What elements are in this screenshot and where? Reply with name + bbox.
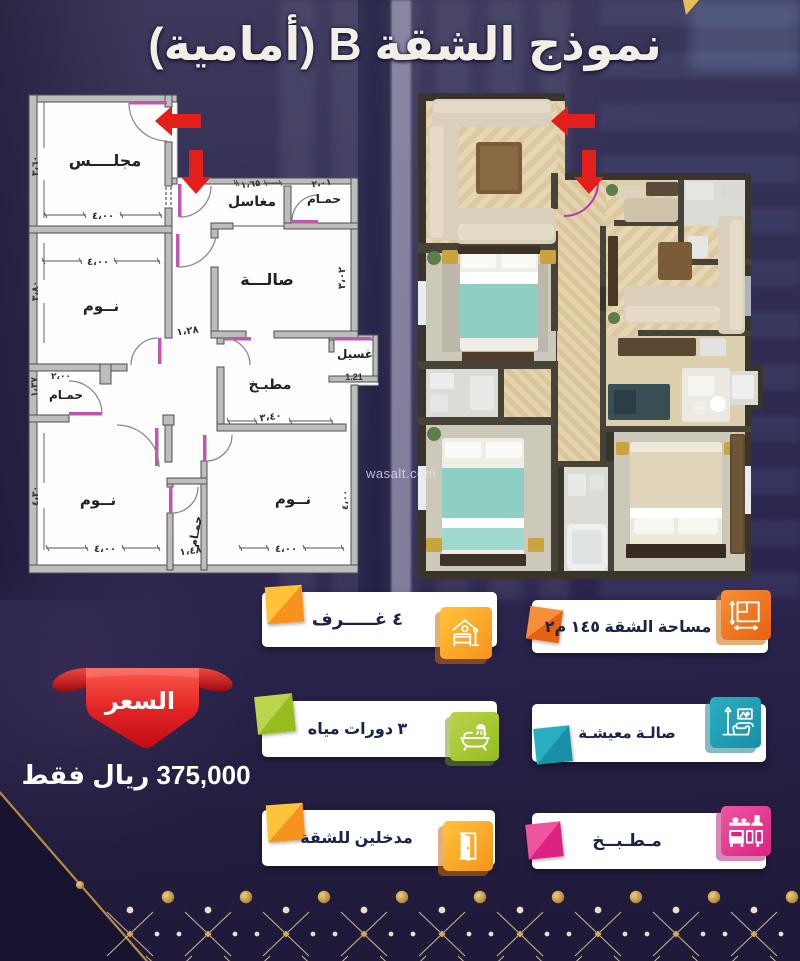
svg-text:١،٣٧: ١،٣٧ xyxy=(29,377,39,397)
svg-text:1.21: 1.21 xyxy=(345,372,363,382)
svg-text:مغاسل: مغاسل xyxy=(228,193,276,209)
svg-text:نــوم: نــوم xyxy=(275,491,311,508)
svg-text:٣،٨٠: ٣،٨٠ xyxy=(30,281,40,301)
svg-text:صالـــة: صالـــة xyxy=(240,272,294,289)
svg-text:٣،٠٢: ٣،٠٢ xyxy=(337,267,348,289)
svg-text:٢،٠٠: ٢،٠٠ xyxy=(51,371,71,381)
svg-text:٤،٠٠: ٤،٠٠ xyxy=(92,211,114,222)
svg-text:نــوم: نــوم xyxy=(83,298,119,315)
svg-text:٤،٠٠: ٤،٠٠ xyxy=(275,544,297,555)
svg-text:مطبـخ: مطبـخ xyxy=(249,376,292,393)
svg-text:مجلــــس: مجلــــس xyxy=(69,153,141,170)
svg-text:حمـام: حمـام xyxy=(307,192,341,207)
svg-text:٤،٣٠: ٤،٣٠ xyxy=(30,486,40,506)
svg-text:٤،٠٠: ٤،٠٠ xyxy=(94,544,116,555)
svg-text:٣،٦٠: ٣،٦٠ xyxy=(30,156,40,176)
svg-text:نــوم: نــوم xyxy=(80,492,116,509)
svg-text:٤،٠٠: ٤،٠٠ xyxy=(340,490,350,510)
svg-text:حمـام: حمـام xyxy=(49,388,83,403)
svg-text:٤،٠٠: ٤،٠٠ xyxy=(87,257,109,268)
svg-text:غسيل: غسيل xyxy=(337,347,373,361)
